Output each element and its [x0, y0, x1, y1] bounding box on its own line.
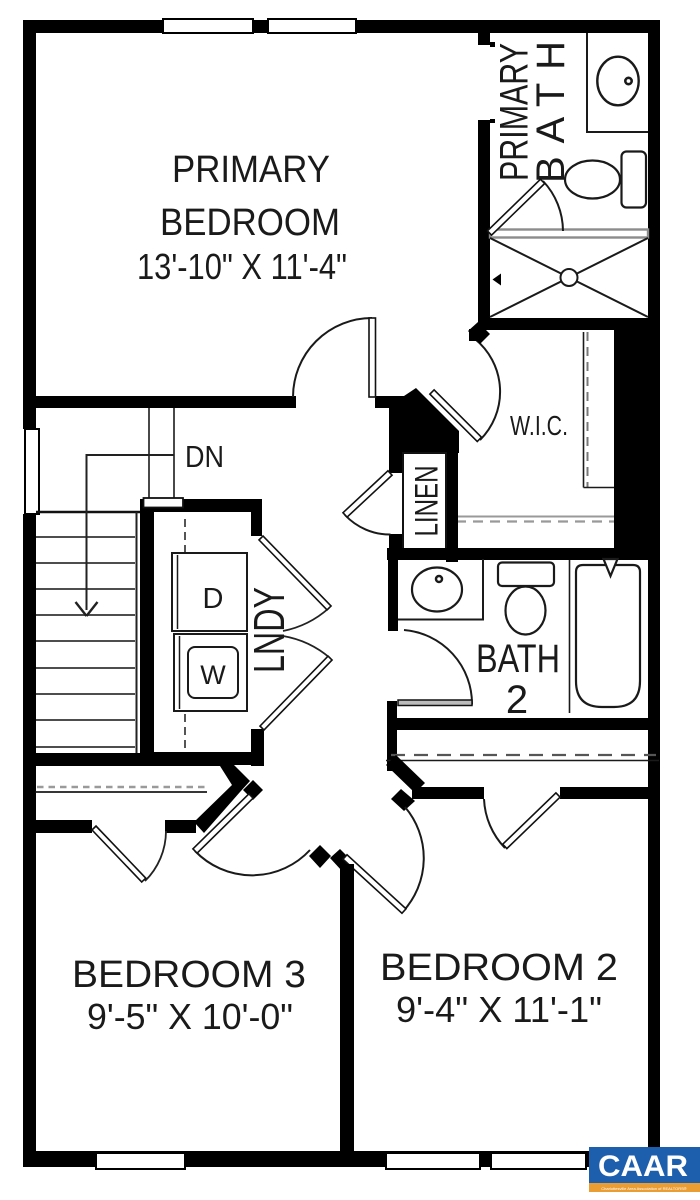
svg-text:W.I.C.: W.I.C.: [510, 410, 568, 441]
svg-text:13'-10" X 11'-4": 13'-10" X 11'-4": [137, 246, 347, 287]
svg-text:W: W: [200, 660, 226, 690]
svg-text:LINEN: LINEN: [409, 466, 445, 537]
svg-text:BATH: BATH: [476, 637, 560, 681]
svg-text:LNDY: LNDY: [245, 587, 294, 673]
svg-text:DN: DN: [185, 439, 224, 474]
svg-text:PRIMARY: PRIMARY: [172, 149, 330, 191]
svg-text:9'-4" X 11'-1": 9'-4" X 11'-1": [396, 989, 602, 1030]
svg-text:BEDROOM: BEDROOM: [160, 202, 340, 244]
svg-text:CAAR: CAAR: [598, 1150, 688, 1183]
svg-text:9'-5" X 10'-0": 9'-5" X 10'-0": [87, 996, 293, 1037]
svg-text:D: D: [203, 583, 224, 615]
svg-text:2: 2: [506, 678, 528, 722]
svg-text:BEDROOM 3: BEDROOM 3: [72, 954, 306, 996]
svg-text:Charlottesville Area Associati: Charlottesville Area Association of REAL…: [601, 1186, 687, 1191]
svg-text:BEDROOM 2: BEDROOM 2: [380, 947, 618, 989]
